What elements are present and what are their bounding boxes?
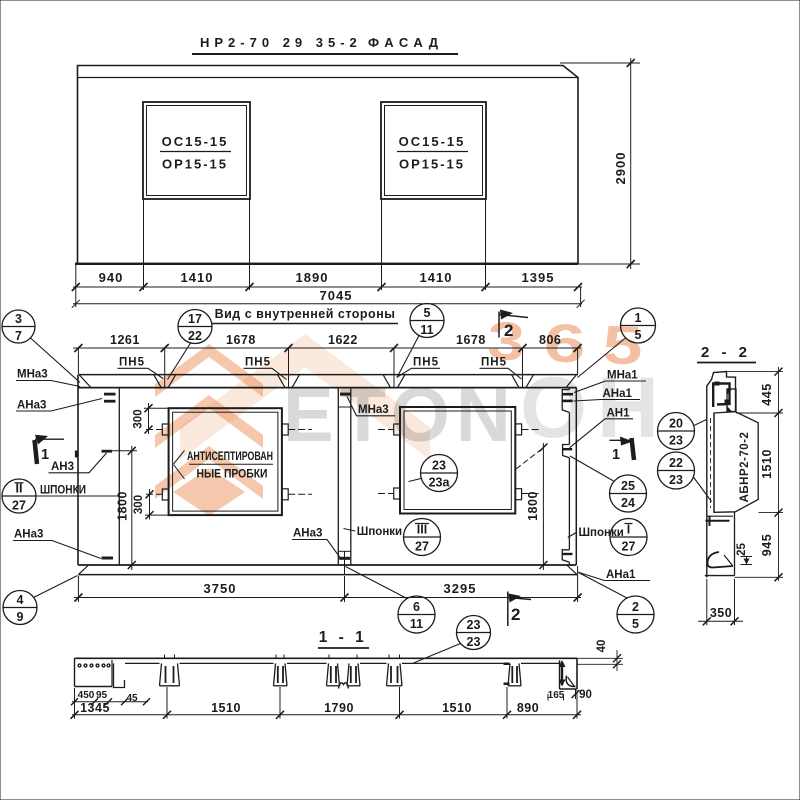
- svg-text:27: 27: [415, 540, 429, 554]
- svg-text:27: 27: [12, 499, 26, 513]
- svg-text:АБНР2-70-2: АБНР2-70-2: [739, 432, 751, 503]
- svg-text:3295: 3295: [444, 581, 477, 596]
- svg-text:945: 945: [760, 534, 774, 556]
- svg-text:1678: 1678: [456, 333, 486, 347]
- svg-text:23: 23: [467, 618, 481, 632]
- svg-text:23а: 23а: [429, 476, 451, 490]
- svg-text:27: 27: [622, 540, 636, 554]
- svg-text:2900: 2900: [613, 152, 628, 185]
- svg-text:3: 3: [15, 312, 22, 326]
- svg-text:1261: 1261: [110, 333, 140, 347]
- svg-text:24: 24: [621, 496, 635, 510]
- svg-text:40: 40: [596, 640, 608, 653]
- svg-text:1: 1: [635, 311, 642, 325]
- svg-text:1410: 1410: [181, 270, 214, 285]
- svg-text:ОР15-15: ОР15-15: [399, 157, 465, 172]
- svg-text:2 - 2: 2 - 2: [701, 344, 751, 361]
- svg-text:23: 23: [669, 473, 683, 487]
- svg-text:1395: 1395: [522, 270, 555, 285]
- svg-text:1345: 1345: [80, 701, 110, 715]
- svg-text:1678: 1678: [226, 333, 256, 347]
- svg-text:1410: 1410: [420, 270, 453, 285]
- svg-text:ПН5: ПН5: [245, 357, 271, 369]
- svg-text:95: 95: [96, 690, 108, 701]
- svg-text:АН1: АН1: [607, 408, 631, 420]
- svg-text:АНа3: АНа3: [17, 400, 46, 412]
- svg-text:ШПОНКИ: ШПОНКИ: [40, 485, 86, 497]
- svg-text:III: III: [417, 523, 427, 537]
- svg-text:23: 23: [669, 434, 683, 448]
- svg-text:165: 165: [548, 690, 565, 701]
- svg-text:5: 5: [635, 328, 642, 342]
- svg-text:ОС15-15: ОС15-15: [399, 134, 466, 149]
- svg-text:НР2-70 29 35-2: НР2-70 29 35-2: [200, 35, 362, 50]
- svg-text:2: 2: [632, 600, 639, 614]
- svg-text:3750: 3750: [204, 581, 237, 596]
- svg-text:4: 4: [17, 593, 24, 607]
- svg-text:25: 25: [736, 543, 748, 556]
- svg-text:5: 5: [632, 617, 639, 631]
- svg-text:II: II: [16, 482, 23, 496]
- svg-text:ПН5: ПН5: [119, 357, 145, 369]
- svg-text:350: 350: [710, 606, 732, 620]
- svg-text:300: 300: [133, 409, 145, 428]
- svg-text:11: 11: [410, 617, 423, 631]
- svg-text:940: 940: [99, 270, 124, 285]
- svg-text:1510: 1510: [760, 449, 774, 479]
- svg-text:ОР15-15: ОР15-15: [162, 157, 228, 172]
- svg-text:23: 23: [432, 459, 446, 473]
- svg-text:450: 450: [78, 690, 95, 701]
- svg-text:445: 445: [760, 383, 774, 405]
- svg-text:1790: 1790: [324, 701, 354, 715]
- svg-text:7: 7: [15, 329, 22, 343]
- svg-text:ФАСАД: ФАСАД: [368, 35, 444, 50]
- svg-text:АНа3: АНа3: [14, 529, 43, 541]
- svg-text:5: 5: [424, 306, 431, 320]
- svg-text:22: 22: [669, 456, 683, 470]
- svg-text:МНа1: МНа1: [607, 370, 638, 382]
- svg-text:7045: 7045: [320, 288, 353, 303]
- svg-text:2: 2: [511, 605, 520, 624]
- svg-text:6: 6: [413, 600, 420, 614]
- svg-text:АНа1: АНа1: [603, 388, 633, 400]
- svg-text:I: I: [627, 523, 630, 537]
- svg-text:22: 22: [188, 329, 202, 343]
- svg-text:90: 90: [579, 689, 592, 701]
- svg-text:45: 45: [126, 693, 138, 704]
- svg-text:МНа3: МНа3: [17, 369, 48, 381]
- svg-text:300: 300: [133, 495, 145, 514]
- svg-text:1890: 1890: [296, 270, 329, 285]
- svg-text:Шпонки: Шпонки: [357, 526, 402, 538]
- svg-text:1622: 1622: [328, 333, 358, 347]
- svg-text:Вид с внутренней стороны: Вид с внутренней стороны: [215, 307, 396, 321]
- svg-text:11: 11: [420, 323, 433, 337]
- svg-text:25: 25: [621, 479, 635, 493]
- svg-text:АН3: АН3: [51, 461, 74, 473]
- svg-text:17: 17: [188, 312, 202, 326]
- svg-text:1510: 1510: [442, 701, 472, 715]
- svg-text:20: 20: [669, 417, 683, 431]
- svg-text:АНа1: АНа1: [606, 569, 636, 581]
- svg-text:1: 1: [612, 447, 620, 463]
- svg-text:1800: 1800: [526, 491, 540, 521]
- svg-text:МНа3: МНа3: [358, 404, 389, 416]
- svg-text:АНа3: АНа3: [293, 528, 322, 540]
- svg-text:806: 806: [539, 333, 561, 347]
- svg-text:ПН5: ПН5: [481, 357, 507, 369]
- svg-text:ОС15-15: ОС15-15: [162, 134, 229, 149]
- svg-text:1510: 1510: [211, 701, 241, 715]
- svg-text:НЫЕ ПРОБКИ: НЫЕ ПРОБКИ: [197, 469, 268, 481]
- svg-text:2: 2: [504, 321, 513, 340]
- svg-text:890: 890: [517, 701, 539, 715]
- svg-text:АНТИСЕПТИРОВАН: АНТИСЕПТИРОВАН: [187, 451, 273, 463]
- svg-text:1: 1: [41, 447, 49, 463]
- svg-text:9: 9: [17, 610, 24, 624]
- svg-text:1 - 1: 1 - 1: [319, 629, 368, 646]
- svg-text:23: 23: [467, 635, 481, 649]
- svg-text:ПН5: ПН5: [413, 357, 439, 369]
